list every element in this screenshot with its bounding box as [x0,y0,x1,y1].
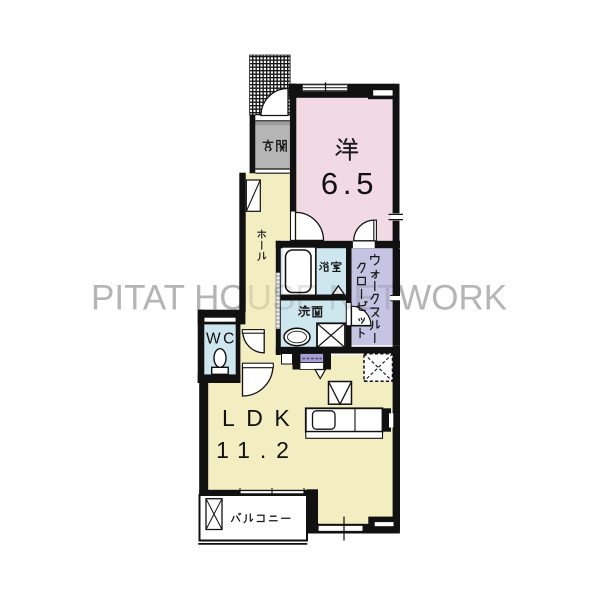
svg-text:PITAT HOUSE NETWORK: PITAT HOUSE NETWORK [91,279,507,318]
svg-text:11.2: 11.2 [216,437,299,463]
svg-text:LDK: LDK [222,405,301,431]
svg-text:6.5: 6.5 [321,166,379,201]
svg-text:WC: WC [206,331,237,348]
